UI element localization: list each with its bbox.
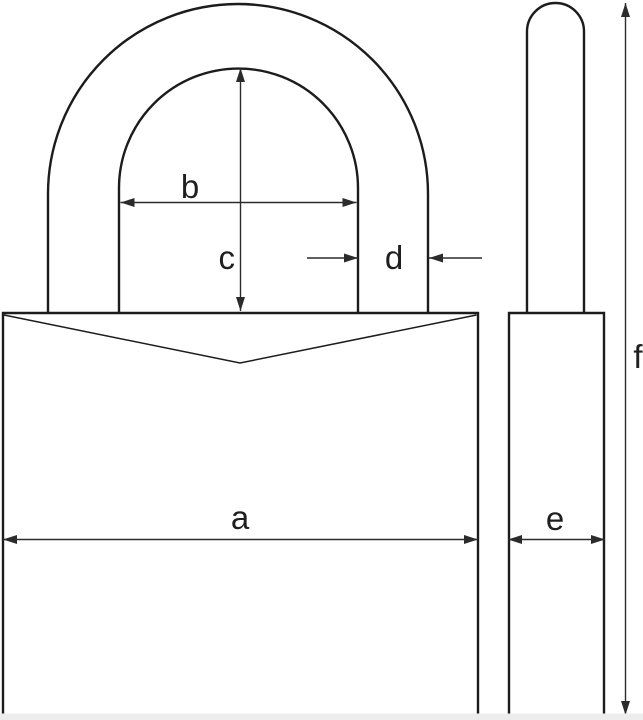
dimension-d: d	[307, 239, 482, 276]
side-shackle-outline	[527, 3, 584, 313]
front-body-chevron	[4, 315, 477, 363]
front-shackle-outer-outline	[48, 4, 428, 313]
dimension-e-label: e	[546, 500, 564, 537]
dimension-d-label: d	[385, 239, 403, 276]
dimension-f: f	[626, 3, 643, 715]
dimension-f-label: f	[633, 338, 643, 375]
dimension-b-label: b	[181, 168, 199, 205]
padlock-side-view	[509, 3, 604, 714]
dimension-e: e	[508, 500, 605, 540]
dimension-b: b	[121, 168, 357, 205]
dimension-a: a	[3, 499, 478, 540]
diagram-canvas: b c d a e f	[0, 0, 643, 720]
padlock-dimension-diagram: b c d a e f	[0, 0, 643, 720]
front-shackle-inner-outline	[119, 69, 358, 313]
dimension-a-label: a	[231, 499, 250, 536]
dimension-c-label: c	[219, 239, 236, 276]
dimension-c: c	[219, 68, 241, 311]
bottom-edge-strip	[0, 714, 643, 720]
